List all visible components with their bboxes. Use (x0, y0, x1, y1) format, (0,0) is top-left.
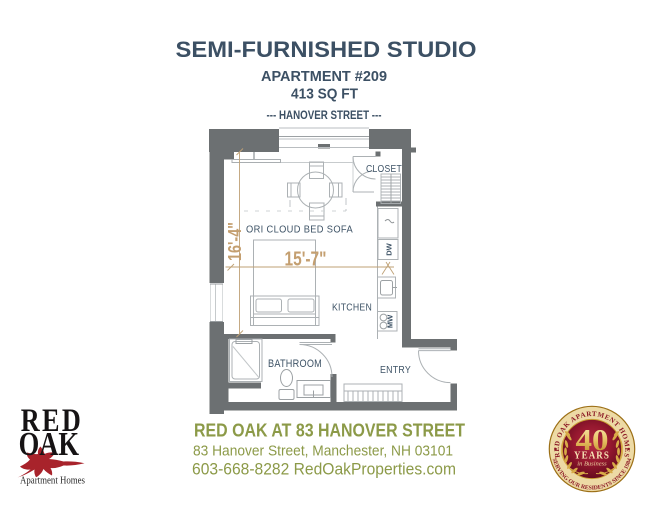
svg-text:RED OAK AT 83 HANOVER STREET: RED OAK AT 83 HANOVER STREET (194, 421, 465, 441)
svg-text:16'-4": 16'-4" (225, 222, 245, 261)
svg-text:83 Hanover Street, Manchester: 83 Hanover Street, Manchester, NH 03101 (193, 443, 453, 460)
svg-text:APARTMENT #209: APARTMENT #209 (261, 68, 387, 85)
svg-text:BATHROOM: BATHROOM (268, 358, 322, 370)
svg-text:413 SQ FT: 413 SQ FT (291, 86, 358, 103)
svg-text:ORI CLOUD BED SOFA: ORI CLOUD BED SOFA (246, 224, 353, 236)
svg-text:KITCHEN: KITCHEN (332, 302, 372, 314)
svg-text:SEMI-FURNISHED STUDIO: SEMI-FURNISHED STUDIO (176, 37, 477, 62)
svg-text:603-668-8282 RedOakPropertie: 603-668-8282 RedOakProperties.com (192, 461, 456, 479)
svg-text:DW: DW (385, 242, 394, 255)
svg-text:CLOSET: CLOSET (366, 164, 402, 175)
svg-text:in Business: in Business (577, 461, 607, 468)
svg-text:15'-7": 15'-7" (285, 249, 327, 271)
svg-text:ENTRY: ENTRY (380, 364, 411, 376)
svg-text:Apartment Homes: Apartment Homes (20, 476, 85, 487)
svg-text:MW: MW (386, 314, 395, 328)
svg-text:OAK: OAK (19, 426, 80, 463)
svg-text:--- HANOVER STREET ---: --- HANOVER STREET --- (267, 110, 382, 122)
